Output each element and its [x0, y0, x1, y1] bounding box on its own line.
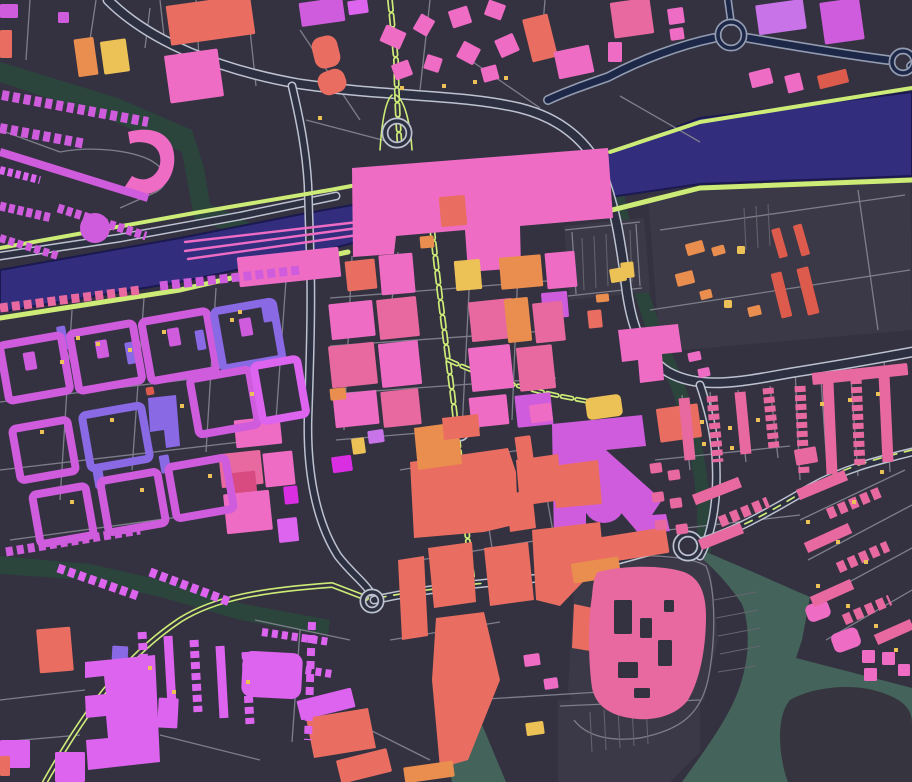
building — [651, 491, 664, 503]
building — [618, 662, 638, 678]
rowhouse-strip — [884, 374, 888, 462]
building — [737, 246, 745, 254]
building — [85, 655, 160, 770]
building — [499, 254, 544, 290]
building — [544, 251, 577, 289]
house-marker-dot — [238, 310, 242, 314]
building — [596, 293, 610, 302]
house-marker-dot — [76, 336, 80, 340]
building — [587, 309, 603, 328]
building — [532, 301, 566, 344]
house-marker-dot — [876, 392, 880, 396]
building — [283, 485, 299, 504]
house-marker-dot — [806, 520, 810, 524]
building — [428, 542, 476, 608]
house-marker-dot — [846, 604, 850, 608]
building — [667, 7, 685, 25]
building — [864, 668, 877, 681]
building — [543, 677, 558, 690]
building — [262, 451, 295, 488]
building — [398, 556, 428, 640]
house-marker-dot — [504, 76, 508, 80]
building — [378, 253, 415, 296]
building — [898, 664, 910, 676]
building — [640, 618, 652, 638]
house-marker-dot — [894, 648, 898, 652]
house-marker-dot — [140, 488, 144, 492]
building — [0, 30, 12, 58]
house-marker-dot — [400, 86, 404, 90]
building — [529, 403, 553, 424]
building — [523, 653, 541, 667]
building — [620, 261, 635, 278]
building — [100, 38, 130, 74]
building — [819, 0, 864, 45]
house-marker-dot — [60, 360, 64, 364]
house-marker-dot — [442, 84, 446, 88]
house-marker-dot — [148, 666, 152, 670]
building — [442, 414, 480, 440]
building — [656, 403, 702, 443]
building — [724, 300, 732, 308]
building — [345, 259, 378, 292]
house-marker-dot — [874, 624, 878, 628]
building — [367, 429, 385, 444]
house-marker-dot — [836, 540, 840, 544]
house-marker-dot — [730, 446, 734, 450]
building — [525, 721, 545, 736]
house-marker-dot — [208, 474, 212, 478]
building — [675, 523, 688, 535]
house-marker-dot — [318, 116, 322, 120]
building — [669, 27, 685, 41]
building — [552, 460, 602, 508]
building — [516, 344, 556, 392]
house-marker-dot — [230, 318, 234, 322]
building — [882, 652, 895, 665]
building — [55, 752, 85, 782]
house-marker-dot — [96, 342, 100, 346]
house-marker-dot — [728, 426, 732, 430]
building — [328, 342, 378, 389]
building — [277, 517, 299, 543]
house-marker-dot — [70, 500, 74, 504]
building — [614, 600, 632, 634]
building — [58, 12, 69, 23]
building — [420, 235, 435, 248]
house-marker-dot — [128, 348, 132, 352]
building — [164, 48, 224, 103]
house-marker-dot — [880, 470, 884, 474]
building — [654, 519, 667, 531]
building — [669, 497, 682, 509]
building — [454, 259, 483, 291]
house-marker-dot — [180, 404, 184, 408]
house-marker-dot — [40, 430, 44, 434]
rowhouse-strip — [220, 646, 224, 718]
building — [504, 297, 532, 343]
building — [634, 688, 650, 698]
building — [329, 387, 346, 401]
building — [380, 388, 422, 428]
house-marker-dot — [864, 560, 868, 564]
building — [658, 640, 672, 666]
building — [351, 437, 366, 455]
house-marker-dot — [473, 80, 477, 84]
house-marker-dot — [250, 392, 254, 396]
house-marker-dot — [162, 330, 166, 334]
house-marker-dot — [852, 500, 856, 504]
building — [378, 340, 422, 388]
building — [331, 455, 353, 474]
building — [608, 42, 622, 62]
house-marker-dot — [816, 584, 820, 588]
building — [0, 4, 18, 18]
house-marker-dot — [756, 418, 760, 422]
rowhouse-strip — [740, 392, 746, 454]
building — [0, 756, 10, 776]
house-marker-dot — [700, 420, 704, 424]
building — [667, 469, 680, 481]
building — [36, 627, 74, 674]
rowhouse-strip — [168, 636, 172, 706]
building — [610, 0, 655, 39]
building — [328, 300, 376, 340]
building — [145, 386, 154, 395]
house-marker-dot — [702, 442, 706, 446]
building — [376, 296, 420, 340]
building — [862, 650, 875, 663]
lot-northeast — [648, 168, 912, 352]
building — [649, 462, 662, 474]
house-marker-dot — [110, 418, 114, 422]
house-marker-dot — [848, 398, 852, 402]
house-marker-dot — [820, 402, 824, 406]
pond-dark — [780, 687, 912, 782]
building — [468, 344, 514, 392]
building — [439, 195, 468, 227]
building — [484, 542, 534, 606]
rowhouse-strip — [828, 382, 832, 474]
house-marker-dot — [172, 690, 176, 694]
house-marker-dot — [246, 680, 250, 684]
map-viewport[interactable] — [0, 0, 912, 782]
map-canvas[interactable] — [0, 0, 912, 782]
building — [664, 600, 674, 612]
rowhouse-strip — [684, 398, 690, 460]
